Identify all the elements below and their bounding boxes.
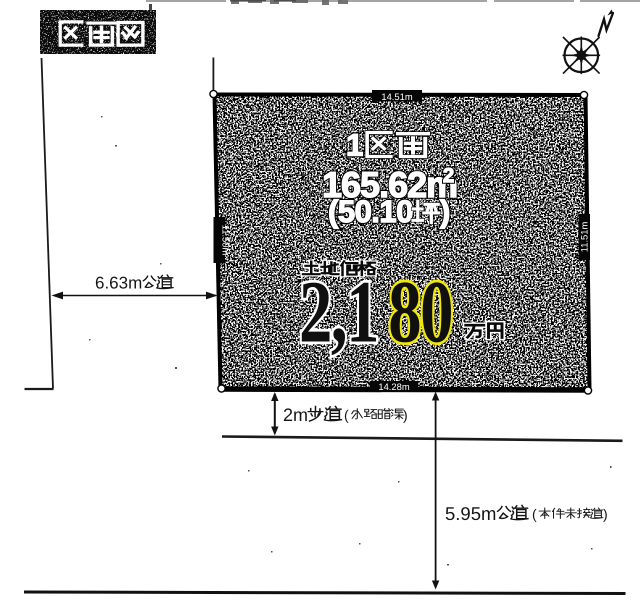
svg-text:1: 1 (346, 128, 363, 163)
svg-text:): ) (603, 506, 608, 522)
svg-text:14.28m: 14.28m (378, 381, 409, 392)
svg-text:2m: 2m (283, 405, 308, 425)
svg-text:): ) (440, 194, 450, 229)
svg-text:80: 80 (388, 264, 452, 362)
svg-text:6.63m: 6.63m (95, 274, 142, 293)
svg-text:(50.10: (50.10 (328, 194, 413, 229)
svg-text:5.95m: 5.95m (445, 503, 496, 524)
svg-text:11.50m: 11.50m (220, 225, 231, 256)
svg-text:): ) (403, 407, 408, 423)
svg-text:14.51m: 14.51m (381, 91, 412, 102)
svg-text:2: 2 (443, 165, 454, 187)
svg-text:11.51m: 11.51m (579, 222, 590, 253)
svg-text:2,1: 2,1 (299, 264, 378, 362)
svg-text:(: ( (344, 407, 349, 423)
svg-text:(: ( (532, 506, 537, 522)
